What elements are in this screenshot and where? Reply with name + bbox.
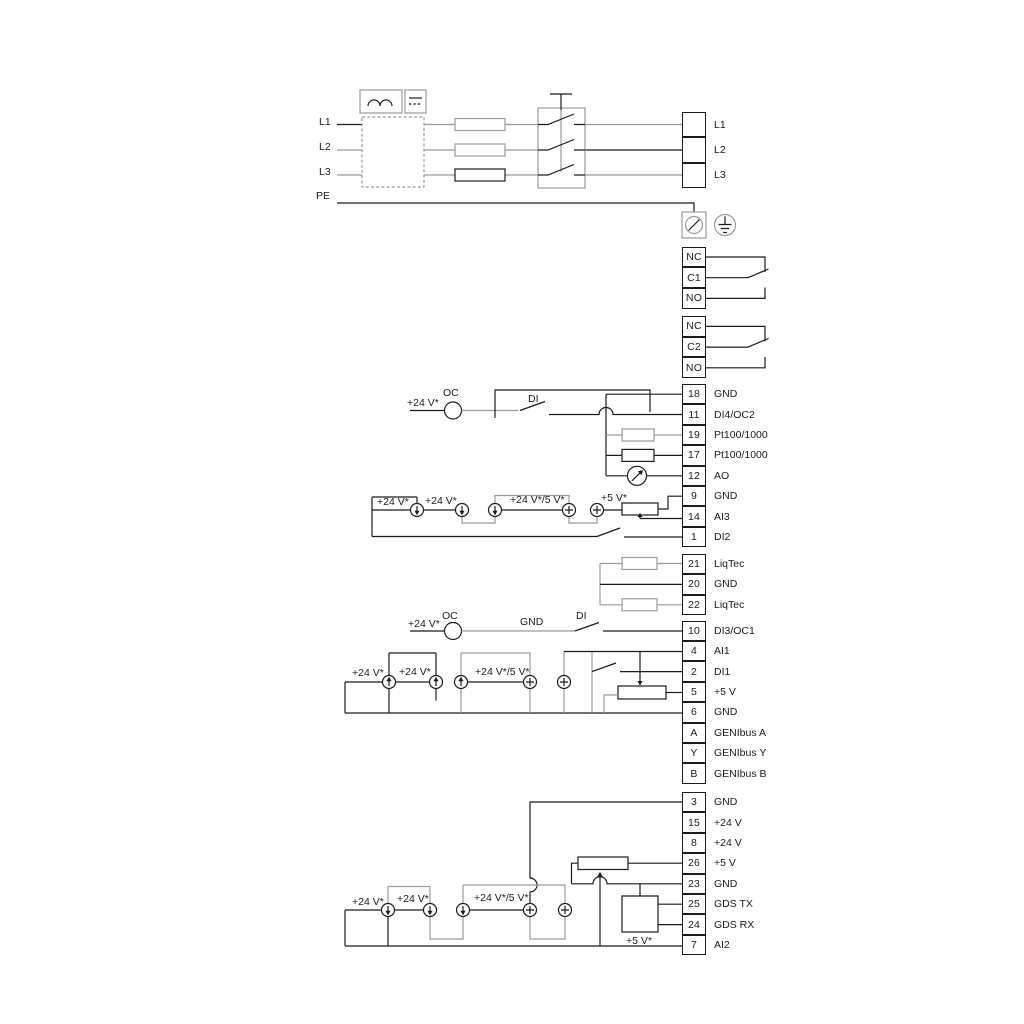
- terminal-label: GENIbus B: [714, 763, 767, 783]
- terminal-cell: 11: [682, 404, 706, 424]
- terminal-label: GND: [714, 384, 737, 404]
- terminal-cell: 24: [682, 914, 706, 934]
- terminal-cell: 17: [682, 445, 706, 465]
- main-switch-icon: [538, 94, 585, 188]
- gds-sensor-box: [622, 896, 658, 932]
- terminal-cell: NC: [682, 247, 706, 268]
- terminal-cell: 18: [682, 384, 706, 404]
- current-source-icon: [457, 904, 470, 917]
- wire-label: +24 V*: [352, 896, 384, 908]
- terminal-cell: NC: [682, 316, 706, 337]
- terminal-label: GND: [714, 574, 737, 594]
- di2-wiring: [372, 528, 682, 537]
- emc-filter-box: [362, 117, 424, 187]
- terminal-label: L2: [714, 137, 726, 162]
- wire-label: +24 V*: [399, 666, 431, 678]
- terminal-cell: 22: [682, 595, 706, 615]
- terminal-label: DI4/OC2: [714, 404, 755, 424]
- terminal-label: +24 V: [714, 833, 742, 853]
- terminal-label: GDS TX: [714, 894, 753, 914]
- wire-label: +24 V*: [408, 618, 440, 630]
- resistor-icon-liqtec-21: [622, 558, 657, 570]
- terminal-cell: 23: [682, 874, 706, 894]
- terminal-label: DI2: [714, 527, 730, 547]
- terminal-cell: 25: [682, 894, 706, 914]
- pot-gds-wiring: [572, 857, 683, 946]
- fuse-icon-l2: [455, 144, 505, 156]
- wire-label: +24 V*/5 V*: [474, 892, 529, 904]
- oc-circle-icon: [445, 623, 462, 640]
- current-source-icon: [456, 504, 469, 517]
- current-source-icon: [424, 904, 437, 917]
- terminal-label: AI2: [714, 935, 730, 955]
- wire-label: +24 V*: [377, 496, 409, 508]
- terminal-cell: 12: [682, 466, 706, 486]
- oc-circle-icon: [445, 402, 462, 419]
- terminal-label: GND: [714, 702, 737, 722]
- current-source-cluster-ai1: [345, 652, 682, 714]
- fuse-icon-l3: [455, 169, 505, 181]
- terminal-cell: NO: [682, 357, 706, 378]
- current-source-icon: [455, 676, 468, 689]
- fuse-icon-l1: [455, 119, 505, 131]
- wire-label: GND: [520, 616, 543, 628]
- oc-di3-wiring: [410, 623, 682, 640]
- terminal-cell: [682, 163, 706, 188]
- terminal-cell: 15: [682, 812, 706, 832]
- terminal-label: L3: [714, 163, 726, 188]
- gnd3-wiring: [530, 802, 682, 904]
- wire-label: OC: [443, 387, 459, 399]
- wire-label: +24 V*: [407, 397, 439, 409]
- wire-label: OC: [442, 610, 458, 622]
- terminal-cell: 3: [682, 792, 706, 812]
- terminal-label: +24 V: [714, 812, 742, 832]
- terminal-label: LiqTec: [714, 595, 744, 615]
- terminal-label: +5 V: [714, 682, 736, 702]
- meter-icon-ao: [606, 466, 682, 485]
- terminal-label: GDS RX: [714, 914, 754, 934]
- wire-label: +24 V*: [352, 667, 384, 679]
- terminal-label: Pt100/1000: [714, 425, 768, 445]
- terminal-cell: [682, 112, 706, 137]
- switch-blade-icon: [592, 663, 616, 672]
- terminal-label: +5 V: [714, 853, 736, 873]
- terminal-cell: [682, 137, 706, 162]
- relay1-contact-icon: [706, 257, 769, 298]
- liqtec-wiring: [600, 558, 682, 611]
- pe-wire: [337, 203, 694, 212]
- current-source-icon: [383, 676, 396, 689]
- terminal-cell: 1: [682, 527, 706, 547]
- terminal-cell: 19: [682, 425, 706, 445]
- terminal-cell: C2: [682, 337, 706, 358]
- wire-label: +5 V*: [626, 935, 652, 947]
- current-source-plus-icon: [591, 504, 604, 517]
- current-source-icon: [411, 504, 424, 517]
- terminal-cell: 2: [682, 661, 706, 681]
- terminal-label: DI3/OC1: [714, 621, 755, 641]
- wire-label: +24 V*/5 V*: [510, 494, 565, 506]
- relay2-contact-icon: [706, 326, 769, 367]
- wire-label: DI: [528, 393, 539, 405]
- terminal-cell: B: [682, 763, 706, 783]
- potentiometer-icon-ai2: [578, 857, 628, 870]
- terminal-cell: C1: [682, 267, 706, 288]
- dc-symbol: [405, 90, 426, 113]
- current-source-icon: [489, 504, 502, 517]
- terminal-cell: 6: [682, 702, 706, 722]
- wire-label: +24 V*/5 V*: [475, 666, 530, 678]
- terminal-cell: 5: [682, 682, 706, 702]
- terminal-label: GND: [714, 874, 737, 894]
- terminal-label: DI1: [714, 661, 730, 681]
- wire-label: +24 V*: [397, 893, 429, 905]
- terminal-label: AI1: [714, 641, 730, 661]
- terminal-cell: 8: [682, 833, 706, 853]
- wire-label: DI: [576, 610, 587, 622]
- wire-label: L1: [319, 116, 331, 128]
- terminal-label: L1: [714, 112, 726, 137]
- terminal-cell: 20: [682, 574, 706, 594]
- terminal-cell: 14: [682, 506, 706, 526]
- earth-ground-icon: [715, 215, 736, 236]
- terminal-cell: 10: [682, 621, 706, 641]
- terminal-label: AI3: [714, 506, 730, 526]
- terminal-label: GENIbus Y: [714, 743, 766, 763]
- wire-label: +5 V*: [601, 492, 627, 504]
- ai1-di1-pot-wiring: [564, 652, 682, 714]
- terminal-cell: 4: [682, 641, 706, 661]
- terminal-cell: 7: [682, 935, 706, 955]
- terminal-cell: NO: [682, 288, 706, 309]
- terminal-label: LiqTec: [714, 554, 744, 574]
- potentiometer-icon-ai1: [618, 686, 666, 699]
- wire-label: PE: [316, 190, 330, 202]
- current-source-icon: [430, 676, 443, 689]
- wire-label: +24 V*: [425, 495, 457, 507]
- current-source-plus-icon: [558, 676, 571, 689]
- terminal-cell: A: [682, 723, 706, 743]
- wiring-diagram: [0, 0, 1024, 1024]
- terminal-cell: 21: [682, 554, 706, 574]
- current-source-plus-icon: [559, 904, 572, 917]
- resistor-icon-pt100-19: [606, 429, 682, 441]
- terminal-label: Pt100/1000: [714, 445, 768, 465]
- terminal-label: AO: [714, 466, 729, 486]
- terminal-cell: 26: [682, 853, 706, 873]
- terminal-label: GENIbus A: [714, 723, 766, 743]
- wire-label: L3: [319, 166, 331, 178]
- wiring-diagram-page: L1L2L3NCC1NONCC2NO18GND11DI4/OC219Pt100/…: [0, 0, 1024, 1024]
- resistor-icon-liqtec-22: [622, 599, 657, 611]
- current-source-plus-icon: [524, 904, 537, 917]
- wire-label: L2: [319, 141, 331, 153]
- terminal-cell: 9: [682, 486, 706, 506]
- switch-blade-icon: [575, 623, 599, 632]
- terminal-cell: Y: [682, 743, 706, 763]
- screw-terminal-icon: [682, 212, 706, 238]
- terminal-label: GND: [714, 792, 737, 812]
- ac-symbol: [360, 90, 402, 113]
- terminal-label: GND: [714, 486, 737, 506]
- resistor-icon-pt100-17: [606, 449, 682, 461]
